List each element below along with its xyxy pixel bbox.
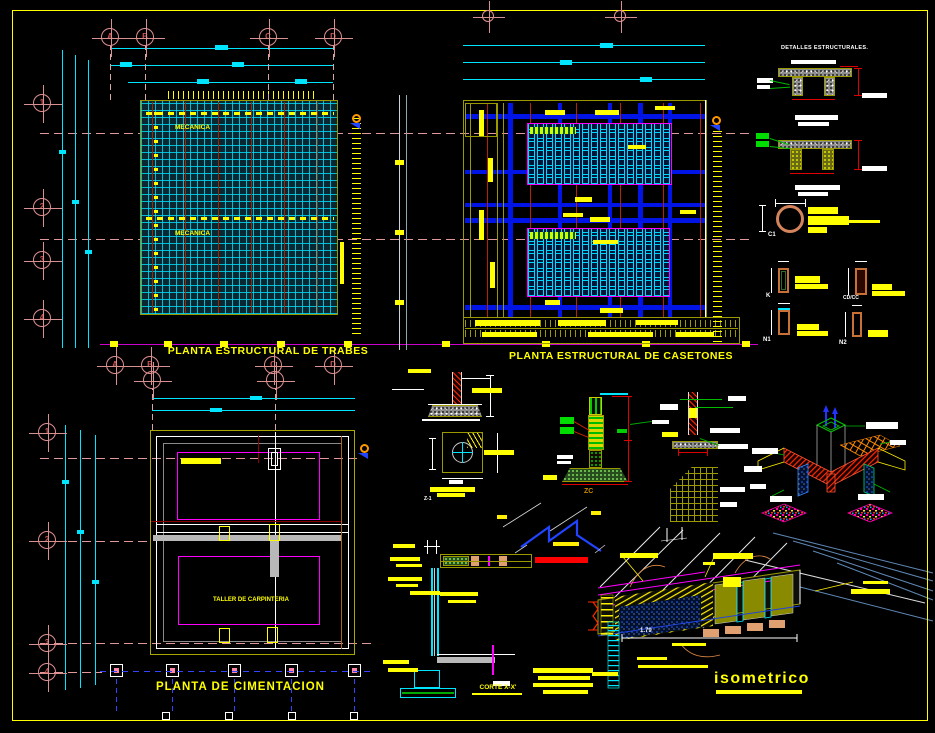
- decor: [59, 150, 66, 154]
- decor: [100, 671, 370, 672]
- decor: [436, 540, 437, 554]
- detail-label: N2: [839, 340, 847, 346]
- decor: [840, 66, 858, 67]
- decor: [250, 396, 262, 400]
- detail-label: CD/CC: [843, 296, 859, 301]
- decor: [858, 140, 859, 170]
- decor: [65, 425, 66, 690]
- decor: [154, 106, 158, 311]
- decor: [557, 455, 573, 459]
- bubble-axis-arm: [621, 1, 622, 33]
- decor: [791, 60, 836, 64]
- decor: [437, 493, 465, 497]
- decor: [465, 328, 738, 329]
- grid-bubble: 3: [33, 251, 51, 269]
- grid-bubble: 4: [33, 309, 51, 327]
- decor: [448, 600, 476, 603]
- decor: [465, 103, 497, 137]
- decor: [710, 428, 740, 433]
- bubble-axis-arm: [43, 189, 44, 227]
- grid-bubble: [614, 10, 626, 22]
- z1-footing: [428, 405, 482, 417]
- detalles-title: DETALLES ESTRUCTURALES.: [781, 46, 851, 52]
- decor: [432, 438, 433, 470]
- grid-bubble: 3: [38, 634, 56, 652]
- room-label: TALLER DE CARPINTERIA: [205, 597, 297, 603]
- decor: [808, 227, 827, 233]
- grid-bubble: B: [136, 28, 154, 46]
- grid-bubble: 2: [38, 531, 56, 549]
- decor: [442, 341, 450, 347]
- decor: [790, 173, 834, 174]
- decor: [475, 320, 540, 326]
- decor: [858, 68, 859, 96]
- decor: [62, 50, 63, 348]
- decor: [395, 160, 404, 165]
- decor: [472, 388, 502, 393]
- decor: [146, 112, 334, 115]
- decor: [851, 589, 890, 594]
- decor: [600, 43, 613, 48]
- decor: [424, 546, 440, 547]
- decor: [617, 429, 627, 433]
- room-label: MECANICA: [175, 231, 210, 238]
- grid-bubble: 1: [33, 94, 51, 112]
- decor: [640, 77, 652, 82]
- decor: [628, 396, 629, 482]
- decor: [588, 332, 653, 337]
- decor: [560, 60, 572, 65]
- decor: [575, 197, 592, 202]
- detail-label: Z-1: [424, 497, 432, 502]
- decor: [638, 665, 708, 668]
- decor: [486, 375, 494, 376]
- room-label: MECANICA: [175, 125, 210, 132]
- decor: [795, 185, 840, 190]
- bubble-axis-arm: [43, 300, 44, 338]
- decor: [759, 205, 766, 206]
- grid-bubble: [266, 371, 284, 389]
- decor: [868, 330, 888, 337]
- decor: [269, 524, 280, 541]
- decor: [270, 541, 279, 577]
- decor: [437, 657, 495, 663]
- decor: [354, 677, 355, 711]
- decor: [628, 145, 646, 149]
- decor: [700, 103, 701, 317]
- decor: [720, 502, 737, 507]
- bubble-axis-arm: [48, 414, 49, 452]
- decor: [790, 149, 802, 170]
- decor: [662, 432, 678, 437]
- decor: [152, 410, 355, 411]
- decor: [462, 442, 463, 463]
- grid-bubble: A: [106, 356, 124, 374]
- decor: [778, 261, 789, 262]
- decor: [490, 262, 495, 288]
- benchmark-symbol: [350, 114, 364, 130]
- decor: [797, 324, 819, 330]
- decor: [538, 676, 590, 680]
- bubble-axis-arm: [269, 19, 270, 57]
- decor: [595, 110, 619, 115]
- bubble-letter: D: [330, 361, 336, 369]
- decor: [414, 670, 440, 688]
- decor: [406, 95, 407, 350]
- decor: [77, 530, 84, 534]
- decor: [590, 217, 610, 222]
- decor: [560, 427, 574, 434]
- decor: [465, 114, 705, 119]
- benchmark-symbol: [710, 116, 724, 132]
- bubble-axis-arm: [489, 1, 490, 33]
- decor: [723, 577, 741, 587]
- decor: [441, 561, 531, 562]
- decor: [854, 95, 862, 96]
- decor: [620, 553, 658, 558]
- decor: [428, 404, 482, 405]
- decor: [232, 62, 244, 67]
- decor: [465, 305, 705, 310]
- decor: [678, 452, 708, 453]
- decor: [197, 79, 209, 84]
- decor: [437, 654, 515, 655]
- decor: [251, 102, 252, 313]
- decor: [624, 481, 632, 482]
- decor: [482, 332, 537, 337]
- decor: [350, 712, 358, 720]
- decor: [678, 449, 679, 456]
- benchmark-circle: [352, 114, 361, 123]
- decor: [838, 220, 880, 223]
- decor: [808, 207, 838, 214]
- decor: [545, 110, 565, 115]
- decor: [431, 568, 433, 656]
- decor: [854, 68, 862, 69]
- bubble-letter: B: [142, 33, 148, 41]
- room-outline: [178, 556, 320, 625]
- decor: [488, 158, 493, 182]
- bubble-letter: C: [265, 33, 271, 41]
- plan-trabes-grid: [140, 100, 338, 315]
- bubble-axis-arm: [43, 242, 44, 280]
- z1-column: [452, 372, 462, 407]
- decor: [728, 396, 746, 401]
- decor: [185, 102, 186, 313]
- decor: [543, 690, 588, 694]
- decor: [624, 440, 632, 441]
- decor: [408, 369, 431, 373]
- decor: [862, 166, 887, 171]
- bubble-axis-arm: [276, 362, 277, 400]
- decor: [778, 308, 790, 310]
- bubble-letter: A: [107, 33, 113, 41]
- bubble-letter: A: [112, 361, 118, 369]
- decor: [162, 712, 170, 720]
- benchmark-symbol: [358, 444, 372, 460]
- dim-ticks: [352, 118, 361, 334]
- decor: [703, 562, 715, 565]
- decor: [463, 62, 705, 63]
- zc-column-top: [589, 397, 602, 415]
- decor: [153, 535, 341, 541]
- decor: [156, 532, 349, 533]
- decor: [824, 77, 835, 96]
- decor: [427, 540, 428, 554]
- beam-section-a: [778, 68, 852, 77]
- decor: [156, 524, 349, 525]
- decor: [116, 677, 117, 711]
- decor: [845, 312, 846, 337]
- decor: [72, 200, 79, 204]
- decor: [120, 62, 132, 67]
- decor: [430, 487, 475, 492]
- decor: [462, 378, 490, 379]
- decor: [267, 627, 278, 643]
- decor: [660, 404, 678, 410]
- decor: [92, 580, 99, 584]
- decor: [152, 102, 153, 313]
- zc-column: [588, 415, 604, 450]
- decor: [463, 79, 705, 80]
- decor: [792, 99, 835, 100]
- decor: [781, 271, 786, 290]
- decor: [151, 521, 341, 522]
- decor: [535, 557, 588, 563]
- benchmark-flag: [358, 453, 368, 459]
- bubble-letter: D: [330, 33, 336, 41]
- decor: [689, 408, 697, 418]
- dim-ticks: [713, 130, 722, 342]
- decor: [533, 668, 593, 673]
- dim-ticks: [168, 91, 314, 99]
- grid-bubble: C: [259, 28, 277, 46]
- decor: [707, 449, 708, 456]
- decor: [872, 284, 892, 290]
- decor: [288, 712, 296, 720]
- decor: [557, 461, 571, 464]
- dimension-text: 1.79: [640, 628, 652, 634]
- decor: [742, 341, 750, 347]
- decor: [558, 320, 606, 326]
- decor: [756, 141, 769, 147]
- detail-label: ZC: [584, 488, 593, 495]
- decor: [757, 85, 770, 89]
- decor: [530, 232, 576, 239]
- plan-trabes-title: PLANTA ESTRUCTURAL DE TRABES: [158, 346, 378, 357]
- benchmark-flag: [710, 125, 720, 131]
- decor: [399, 95, 400, 350]
- decor: [492, 645, 494, 675]
- decor: [600, 308, 623, 313]
- decor: [181, 458, 221, 464]
- decor: [716, 690, 802, 694]
- decor: [219, 526, 230, 541]
- decor: [775, 199, 776, 207]
- decor: [655, 106, 675, 110]
- bubble-axis-arm: [48, 522, 49, 560]
- decor: [798, 122, 829, 126]
- decor: [396, 584, 418, 587]
- decor: [85, 250, 92, 254]
- decor: [146, 217, 334, 220]
- grid-bubble: D: [324, 356, 342, 374]
- decor: [479, 210, 484, 240]
- plan-cimentacion-title: PLANTA DE CIMENTACION: [143, 682, 338, 694]
- detail-label: K: [766, 293, 770, 299]
- section-cdcc: [855, 268, 867, 295]
- decor: [854, 140, 862, 141]
- decor: [449, 480, 463, 484]
- decor: [210, 408, 222, 412]
- decor: [545, 300, 560, 305]
- decor: [434, 568, 435, 656]
- decor: [295, 79, 307, 84]
- detail-label: N1: [763, 337, 771, 343]
- decor: [340, 242, 344, 284]
- decor: [80, 430, 81, 688]
- decor: [395, 230, 404, 235]
- decor: [589, 450, 602, 468]
- decor: [759, 231, 766, 232]
- decor: [530, 127, 576, 134]
- decor: [465, 203, 705, 207]
- decor: [218, 102, 219, 313]
- decor: [463, 45, 705, 46]
- decor: [88, 60, 89, 348]
- decor: [797, 331, 828, 336]
- decor: [341, 436, 342, 649]
- bubble-axis-arm: [48, 654, 49, 692]
- decor: [402, 692, 454, 694]
- decor: [680, 399, 722, 400]
- decor: [219, 628, 230, 643]
- decor: [852, 305, 862, 306]
- decor: [672, 643, 706, 646]
- decor: [533, 683, 593, 687]
- decor: [705, 100, 706, 318]
- decor: [317, 102, 318, 313]
- decor: [543, 475, 557, 480]
- decor: [593, 240, 618, 244]
- decor: [383, 660, 409, 664]
- section-n1: [778, 310, 790, 335]
- decor: [652, 420, 669, 424]
- decor: [225, 712, 233, 720]
- decor: [429, 469, 436, 470]
- decor: [563, 213, 583, 217]
- decor: [636, 320, 678, 325]
- detail-label: C1: [768, 232, 776, 238]
- decor: [95, 435, 96, 685]
- decor: [676, 332, 714, 337]
- decor: [863, 581, 888, 584]
- benchmark-circle: [360, 444, 369, 453]
- grid-bubble: 4: [38, 663, 56, 681]
- decor: [771, 268, 772, 293]
- decor: [720, 487, 745, 492]
- decor: [637, 657, 667, 660]
- decor: [410, 591, 440, 595]
- decor: [437, 568, 439, 656]
- benchmark-circle: [712, 116, 721, 125]
- grid-bubble: [143, 371, 161, 389]
- decor: [695, 407, 733, 408]
- decor: [854, 169, 862, 170]
- decor: [795, 115, 838, 120]
- decor: [390, 557, 420, 561]
- decor: [862, 93, 887, 98]
- decor: [713, 553, 753, 559]
- section-n2: [852, 312, 862, 337]
- decor: [215, 45, 228, 50]
- decor: [490, 375, 491, 417]
- grid-bubble: A: [101, 28, 119, 46]
- decor: [560, 417, 574, 424]
- decor: [395, 300, 404, 305]
- decor: [762, 205, 763, 232]
- column-c1-section: [776, 205, 804, 233]
- decor: [497, 103, 498, 317]
- decor: [805, 199, 806, 207]
- decor: [393, 544, 415, 548]
- decor: [848, 268, 849, 295]
- decor: [284, 102, 285, 313]
- decor: [872, 291, 905, 296]
- bubble-axis-arm: [146, 19, 147, 57]
- bubble-axis-arm: [43, 85, 44, 123]
- decor: [503, 103, 504, 317]
- decor: [465, 218, 705, 223]
- decor: [429, 438, 436, 439]
- grid-bubble: [482, 10, 494, 22]
- isometric-title: isometrico: [714, 671, 844, 687]
- decor: [771, 310, 772, 335]
- decor: [600, 393, 628, 395]
- decor: [440, 592, 478, 596]
- decor: [680, 210, 696, 214]
- decor: [778, 303, 790, 304]
- decor: [798, 192, 828, 196]
- decor: [396, 564, 422, 567]
- decor: [388, 577, 422, 581]
- grid-bubble: 2: [33, 198, 51, 216]
- decor: [822, 149, 834, 170]
- zc-footing: [562, 468, 628, 482]
- grid-bubble: D: [324, 28, 342, 46]
- decor: [855, 261, 867, 262]
- decor: [795, 284, 828, 289]
- decor: [508, 103, 513, 317]
- decor: [110, 65, 333, 66]
- bubble-axis-arm: [116, 347, 117, 385]
- decor: [388, 668, 418, 672]
- decor: [442, 478, 483, 479]
- decor: [792, 77, 803, 96]
- bubble-axis-arm: [153, 362, 154, 400]
- plan-casetones-title: PLANTA ESTRUCTURAL DE CASETONES: [492, 351, 750, 362]
- decor: [392, 389, 424, 390]
- benchmark-flag: [350, 123, 360, 129]
- corte-title: CORTE X-X': [472, 685, 524, 692]
- decor: [562, 484, 628, 485]
- decor: [486, 416, 494, 417]
- decor: [612, 396, 628, 397]
- decor: [775, 203, 805, 204]
- decor: [62, 480, 69, 484]
- bubble-axis-arm: [111, 19, 112, 57]
- decor: [271, 452, 278, 466]
